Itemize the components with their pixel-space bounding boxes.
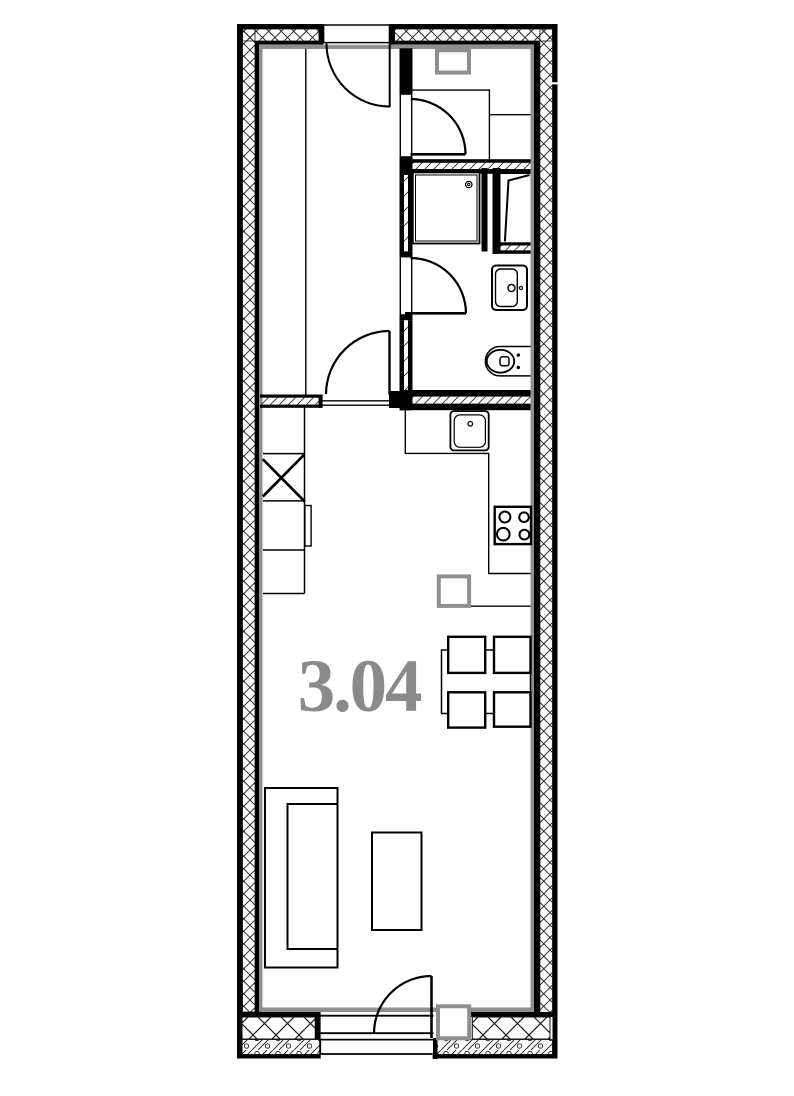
svg-text:3.04: 3.04: [298, 645, 422, 728]
